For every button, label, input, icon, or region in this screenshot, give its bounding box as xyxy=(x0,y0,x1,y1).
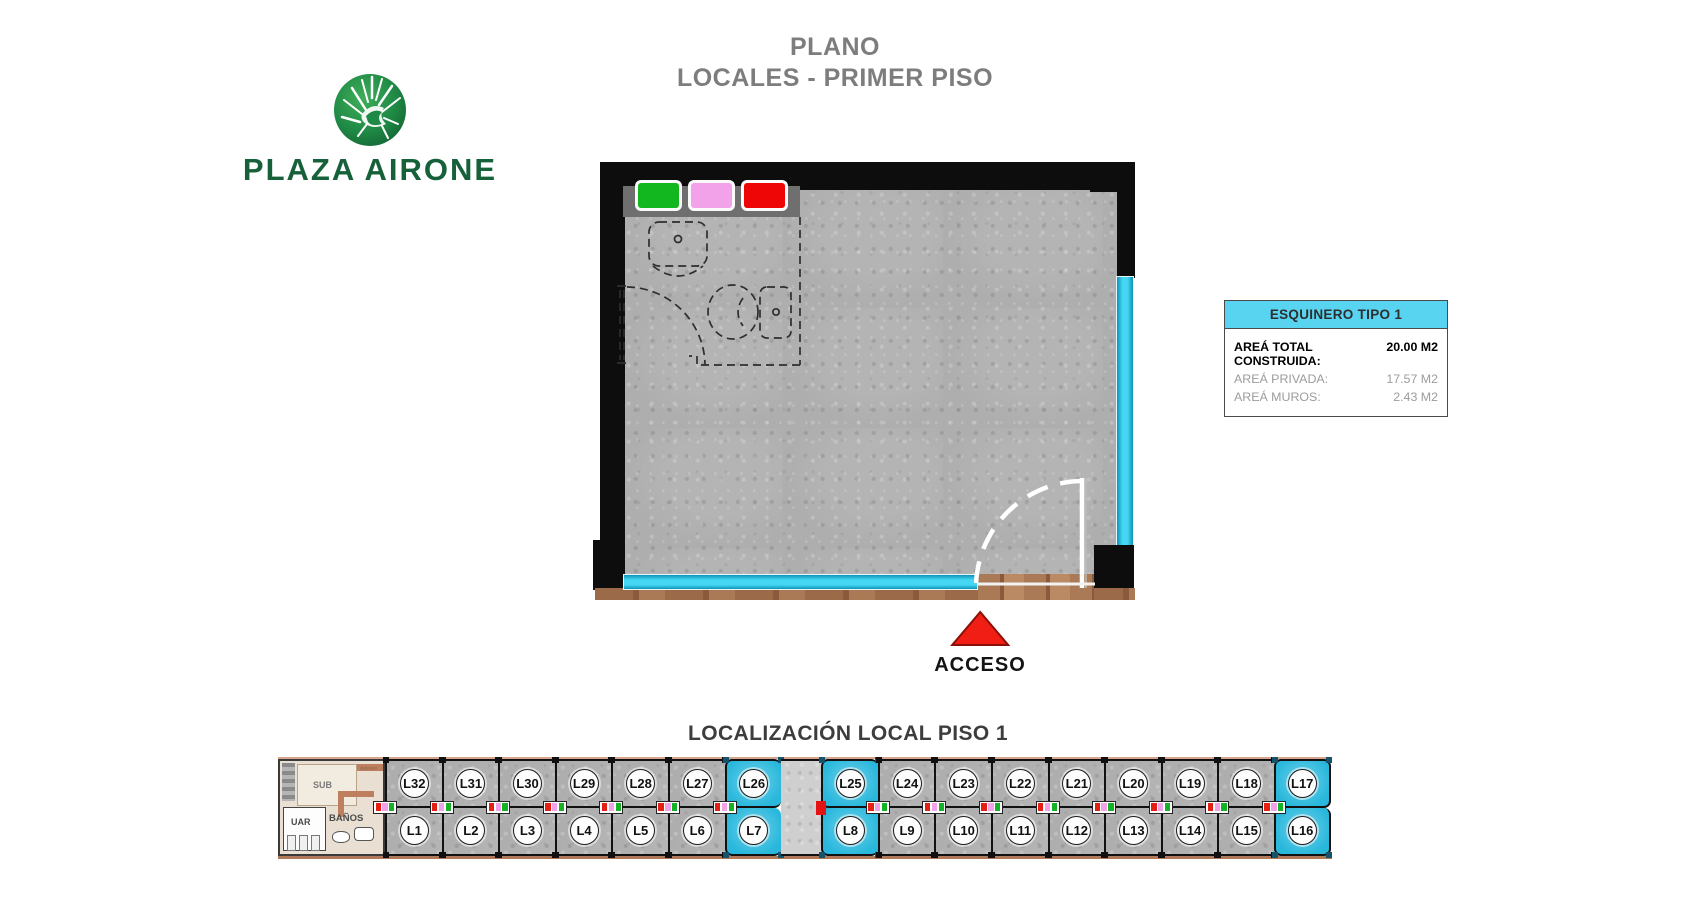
color-indicator xyxy=(599,801,623,814)
local-badge: L25 xyxy=(836,769,865,798)
local-badge: L16 xyxy=(1288,816,1317,845)
local-cell: L13 xyxy=(1104,808,1161,857)
local-badge: L19 xyxy=(1176,769,1205,798)
local-badge: L23 xyxy=(949,769,978,798)
local-badge: L3 xyxy=(513,816,542,845)
local-badge: L1 xyxy=(400,816,429,845)
access-marker: ACCESO xyxy=(934,610,1026,677)
local-badge: L6 xyxy=(683,816,712,845)
area-muros-value: 2.43 M2 xyxy=(1393,390,1438,404)
color-indicator xyxy=(430,801,454,814)
area-privada-label: AREÁ PRIVADA: xyxy=(1234,372,1328,386)
local-cell: L14 xyxy=(1161,808,1218,857)
local-badge: L12 xyxy=(1062,816,1091,845)
logo-foliage-icon xyxy=(332,72,408,148)
color-indicator xyxy=(1149,801,1173,814)
color-indicator xyxy=(1205,801,1229,814)
color-indicator xyxy=(1036,801,1060,814)
local-cell: L4 xyxy=(555,808,612,857)
localization-strip: SUB BAÑOS UAR Admon L32 L1 L31 L2 L30 L3… xyxy=(278,757,1332,859)
toilet-icon xyxy=(354,827,374,841)
logo-wordmark: PLAZA AIRONE xyxy=(205,152,535,188)
locales-column-26-7-highlight: L26 L7 xyxy=(725,759,782,856)
toilet-icon xyxy=(332,831,350,843)
local-badge: L24 xyxy=(893,769,922,798)
color-indicator xyxy=(656,801,680,814)
area-total-label: AREÁ TOTAL CONSTRUIDA: xyxy=(1234,340,1386,368)
page-title: PLANO LOCALES - PRIMER PISO xyxy=(677,32,993,93)
local-cell: L11 xyxy=(991,808,1048,857)
unit-info-box: ESQUINERO TIPO 1 AREÁ TOTAL CONSTRUIDA: … xyxy=(1224,300,1448,417)
color-indicator xyxy=(1092,801,1116,814)
local-badge: L17 xyxy=(1288,769,1317,798)
area-total-value: 20.00 M2 xyxy=(1386,340,1438,368)
local-cell: L10 xyxy=(934,808,991,857)
local-badge: L28 xyxy=(626,769,655,798)
title-line-1: PLANO xyxy=(677,32,993,63)
local-badge: L26 xyxy=(739,769,768,798)
local-cell: L2 xyxy=(442,808,499,857)
color-indicator xyxy=(486,801,510,814)
local-badge: L15 xyxy=(1232,816,1261,845)
local-cell: L15 xyxy=(1217,808,1274,857)
area-muros-row: AREÁ MUROS: 2.43 M2 xyxy=(1234,390,1438,404)
local-badge: L13 xyxy=(1119,816,1148,845)
access-point-marker xyxy=(816,801,826,815)
color-indicator xyxy=(543,801,567,814)
area-privada-value: 17.57 M2 xyxy=(1386,372,1438,386)
plaza-airone-logo: PLAZA AIRONE xyxy=(205,72,535,188)
area-muros-label: AREÁ MUROS: xyxy=(1234,390,1321,404)
color-indicator xyxy=(979,801,1003,814)
local-badge: L4 xyxy=(570,816,599,845)
locker-icon xyxy=(311,835,320,851)
local-badge: L11 xyxy=(1006,816,1035,845)
local-badge: L10 xyxy=(949,816,978,845)
access-triangle-icon xyxy=(950,610,1010,647)
sub-label: SUB xyxy=(313,780,332,790)
local-badge: L31 xyxy=(456,769,485,798)
local-badge: L30 xyxy=(513,769,542,798)
locker-icon xyxy=(287,835,296,851)
unit-areas: AREÁ TOTAL CONSTRUIDA: 20.00 M2 AREÁ PRI… xyxy=(1225,329,1447,416)
color-indicator xyxy=(866,801,890,814)
corridor-gap xyxy=(781,759,821,856)
local-badge: L32 xyxy=(400,769,429,798)
color-indicator xyxy=(713,801,737,814)
access-label: ACCESO xyxy=(934,654,1026,677)
local-cell-highlight: L8 xyxy=(821,808,878,857)
local-badge: L20 xyxy=(1119,769,1148,798)
local-cell: L5 xyxy=(611,808,668,857)
localization-title: LOCALIZACIÓN LOCAL PISO 1 xyxy=(688,722,1008,746)
local-cell: L6 xyxy=(668,808,725,857)
services-block: SUB BAÑOS UAR Admon xyxy=(278,759,385,856)
local-badge: L7 xyxy=(739,816,768,845)
local-cell: L9 xyxy=(878,808,935,857)
area-total-row: AREÁ TOTAL CONSTRUIDA: 20.00 M2 xyxy=(1234,340,1438,368)
color-indicator xyxy=(373,801,397,814)
local-badge: L21 xyxy=(1062,769,1091,798)
local-badge: L27 xyxy=(683,769,712,798)
stairs-icon xyxy=(282,763,295,801)
local-cell: L12 xyxy=(1048,808,1105,857)
unit-type-header: ESQUINERO TIPO 1 xyxy=(1225,301,1447,329)
local-badge: L18 xyxy=(1232,769,1261,798)
title-line-2: LOCALES - PRIMER PISO xyxy=(677,63,993,94)
local-badge: L29 xyxy=(570,769,599,798)
local-cell-highlight: L7 xyxy=(725,808,782,857)
banos-label: BAÑOS xyxy=(329,813,363,824)
area-privada-row: AREÁ PRIVADA: 17.57 M2 xyxy=(1234,372,1438,386)
admon-label: Admon xyxy=(360,766,377,772)
local-badge: L9 xyxy=(893,816,922,845)
plano-sheet: PLANO LOCALES - PRIMER PISO xyxy=(0,0,1701,900)
local-badge: L14 xyxy=(1176,816,1205,845)
local-badge: L5 xyxy=(626,816,655,845)
local-cell-highlight: L16 xyxy=(1274,808,1331,857)
floor-plan xyxy=(593,160,1138,602)
color-indicator xyxy=(1262,801,1286,814)
plan-linework xyxy=(593,160,1138,602)
local-cell: L3 xyxy=(498,808,555,857)
locales-column-17-16-highlight: L17 L16 xyxy=(1274,759,1331,856)
local-badge: L8 xyxy=(836,816,865,845)
locker-icon xyxy=(299,835,308,851)
color-indicator xyxy=(922,801,946,814)
uar-label: UAR xyxy=(291,817,311,827)
local-cell: L1 xyxy=(385,808,442,857)
local-badge: L22 xyxy=(1006,769,1035,798)
local-badge: L2 xyxy=(456,816,485,845)
